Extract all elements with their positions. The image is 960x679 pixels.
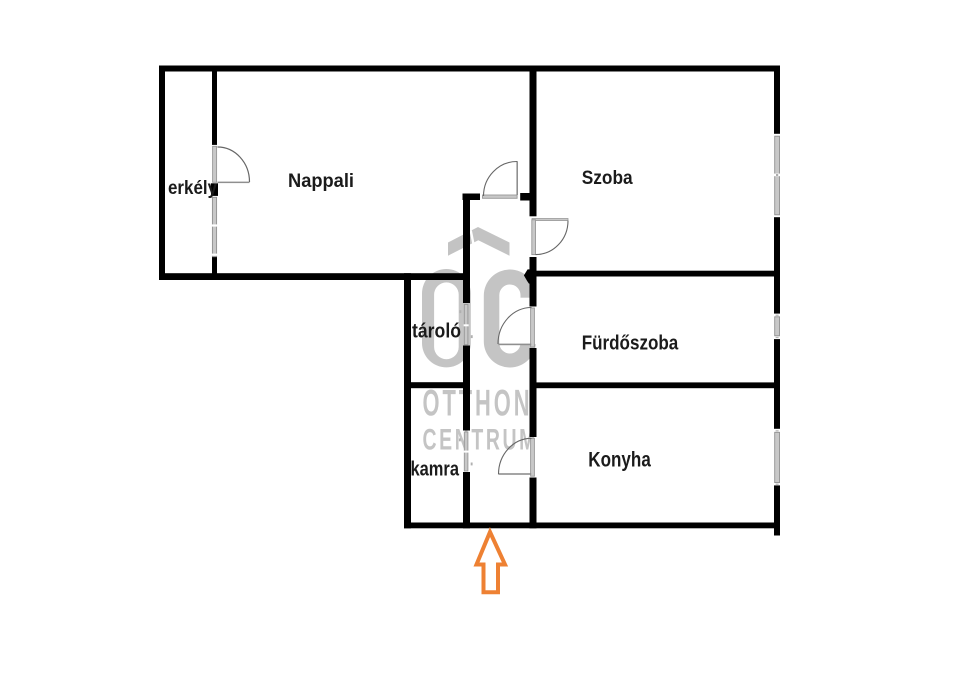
svg-text:erkély: erkély xyxy=(168,177,217,199)
svg-text:Konyha: Konyha xyxy=(588,448,651,472)
svg-text:Szoba: Szoba xyxy=(582,167,633,189)
svg-text:kamra: kamra xyxy=(411,458,460,481)
svg-text:Fürdőszoba: Fürdőszoba xyxy=(582,333,679,355)
svg-text:Nappali: Nappali xyxy=(288,171,354,192)
svg-text:tároló: tároló xyxy=(412,321,461,343)
